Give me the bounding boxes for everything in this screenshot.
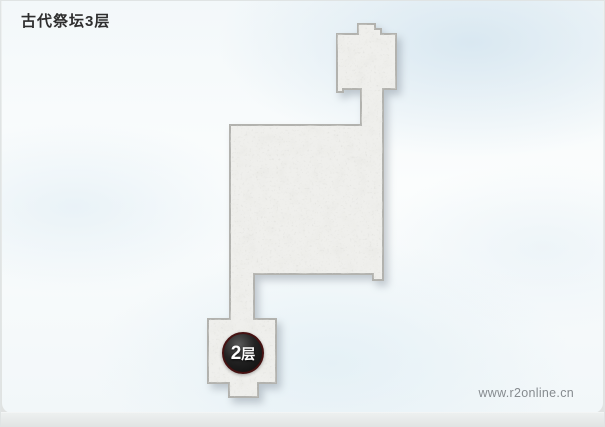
watermark-url: www.r2online.cn xyxy=(478,386,574,400)
bottom-strip xyxy=(1,412,604,426)
page: 古代祭坛3层 2层 www.r2online.cn xyxy=(0,0,605,427)
level-2-marker[interactable]: 2层 xyxy=(222,332,264,374)
level-2-marker-label: 2层 xyxy=(231,344,256,363)
dungeon-map xyxy=(1,1,605,427)
